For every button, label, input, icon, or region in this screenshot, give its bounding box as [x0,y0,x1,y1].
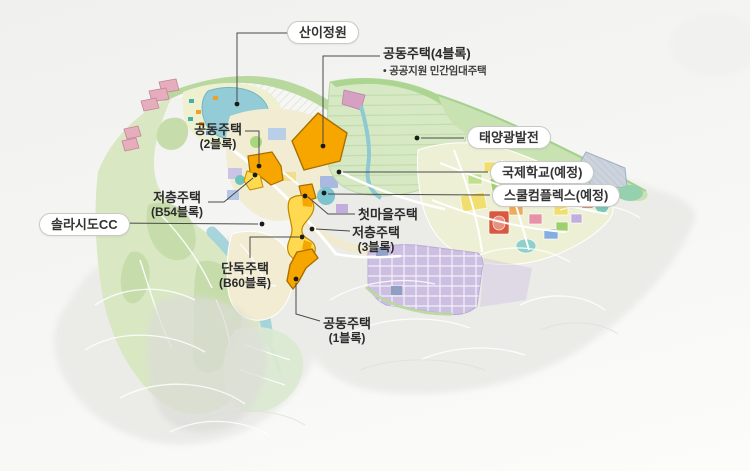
label-apt-block1-line1: 공동주택 [323,316,371,331]
label-apt-block4-title: 공동주택(4블록) [383,46,471,61]
label-apt-block2-line1: 공동주택 [194,122,242,137]
label-school-complex: 스쿨컴플렉스(예정) [492,184,620,207]
label-apt-block1-line2: (1블록) [323,331,371,346]
label-apt-block4: 공동주택(4블록) • 공공지원 민간임대주택 [383,46,487,79]
label-first-village: 첫마을주택 [358,207,418,222]
label-lowrise-b54-line2: (B54블록) [151,205,203,220]
label-lowrise-b54-line1: 저층주택 [153,190,201,205]
label-sani-garden: 산이정원 [287,21,359,44]
label-lowrise-3: 저층주택 (3블록) [352,225,400,255]
label-detached-b60: 단독주택 (B60블록) [219,261,271,291]
label-apt-block4-note: • 공공지원 민간임대주택 [383,64,487,79]
label-solar-power: 태양광발전 [467,126,551,149]
label-lowrise-b54: 저층주택 (B54블록) [151,190,203,220]
label-apt-block2-line2: (2블록) [194,137,242,152]
label-detached-b60-line1: 단독주택 [221,261,269,276]
label-lowrise-3-line1: 저층주택 [352,225,400,240]
label-detached-b60-line2: (B60블록) [219,276,271,291]
label-apt-block2: 공동주택 (2블록) [194,122,242,152]
tip-green [617,185,643,201]
label-intl-school: 국제학교(예정) [490,161,594,184]
master-plan-map: 산이정원 태양광발전 국제학교(예정) 스쿨컴플렉스(예정) 솔라시도CC 공동… [0,0,750,471]
grid-cell-blue2 [391,286,402,295]
label-lowrise-3-line2: (3블록) [352,240,400,255]
label-solasido-cc: 솔라시도CC [39,213,130,236]
label-apt-block1: 공동주택 (1블록) [323,316,371,346]
